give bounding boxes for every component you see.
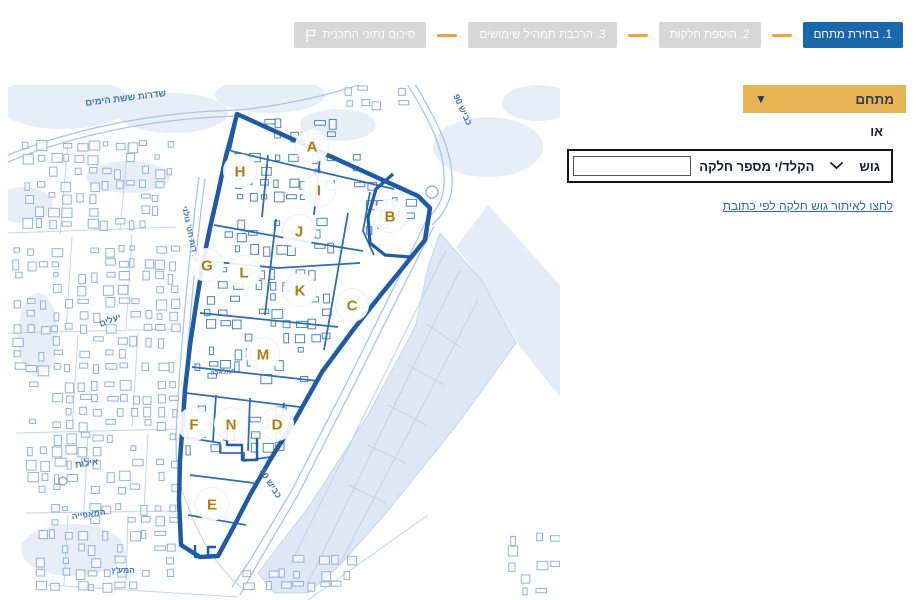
mitcham-dropdown[interactable]: מתחם ▼ [743, 85, 906, 113]
parcel-number-input[interactable] [573, 156, 691, 176]
gush-parcel-box: גוש הקלד/י מספר חלקה [567, 149, 893, 183]
stepper-step-1[interactable]: 1. בחירת מתחם [803, 22, 903, 48]
zone-marker-D[interactable]: D [261, 408, 294, 441]
zone-marker-A[interactable]: A [296, 130, 329, 163]
stepper-connector [772, 34, 792, 37]
zone-letter-F: F [189, 417, 198, 434]
or-label: או [870, 124, 883, 139]
gush-select[interactable]: גוש [830, 159, 880, 174]
zone-marker-G[interactable]: G [191, 249, 224, 282]
zone-letter-A: A [307, 139, 318, 156]
stepper-step-summary-label: סיכום נתוני התכנית [323, 22, 416, 48]
gush-label: גוש [859, 159, 880, 174]
chevron-down-icon [830, 162, 843, 170]
stepper-connector [437, 34, 457, 37]
zone-marker-L[interactable]: L [228, 256, 261, 289]
map[interactable]: שדרות ששת הימיםכביש 90שדרות חט' גולנייעל… [8, 85, 560, 600]
zone-letter-C: C [347, 298, 358, 315]
zone-letter-B: B [385, 209, 396, 226]
map-roundabout [59, 477, 67, 485]
zone-letter-N: N [226, 417, 237, 434]
zone-marker-B[interactable]: B [374, 200, 407, 233]
address-search-link[interactable]: לחצו לאיתור גוש חלקה לפי כתובת [723, 199, 893, 213]
mitcham-label: מתחם [855, 92, 894, 107]
street-label-hamaafia: המאפייה [71, 507, 106, 522]
zone-letter-D: D [272, 417, 283, 434]
zone-marker-E[interactable]: E [196, 488, 229, 521]
zone-letter-H: H [235, 164, 246, 181]
flag-icon [305, 29, 316, 42]
parcel-number-label: הקלד/י מספר חלקה [699, 159, 814, 174]
map-roundabout [426, 186, 438, 198]
stepper-step-2[interactable]: 2. הוספת חלקות [659, 22, 761, 48]
stepper-step-summary[interactable]: סיכום נתוני התכנית [294, 22, 427, 48]
zone-letter-I: I [317, 183, 321, 200]
zone-letter-G: G [201, 258, 213, 275]
stepper-step-3[interactable]: 3. הרכבת תמהיל שימושים [468, 22, 616, 48]
zone-marker-H[interactable]: H [224, 155, 257, 188]
street-label-kvish-90-south: כביש 90 [257, 467, 283, 500]
zone-letter-J: J [295, 224, 303, 241]
zone-letter-E: E [207, 497, 217, 514]
zone-marker-I[interactable]: I [303, 174, 336, 207]
zone-marker-N[interactable]: N [215, 408, 248, 441]
zone-marker-F[interactable]: F [178, 408, 211, 441]
zone-letter-K: K [295, 283, 306, 300]
zone-marker-C[interactable]: C [336, 289, 369, 322]
stepper-connector [628, 34, 648, 37]
zone-marker-J[interactable]: J [283, 215, 316, 248]
zone-letter-L: L [239, 265, 248, 282]
zone-letter-M: M [257, 347, 270, 364]
dropdown-triangle-icon: ▼ [755, 93, 767, 105]
stepper: 1. בחירת מתחם 2. הוספת חלקות 3. הרכבת תמ… [294, 22, 904, 48]
zone-marker-K[interactable]: K [284, 274, 317, 307]
zone-marker-M[interactable]: M [247, 338, 280, 371]
street-label-hamaatz: המע'ץ [111, 565, 135, 575]
